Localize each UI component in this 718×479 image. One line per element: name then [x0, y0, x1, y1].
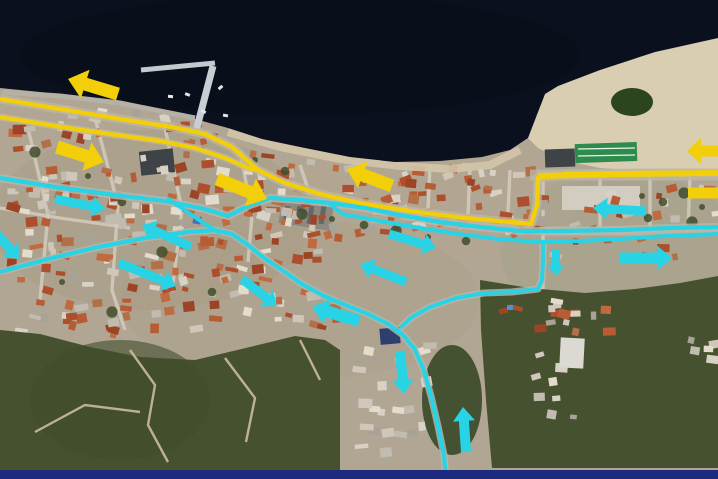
yellow-route-east-highway-overlay	[538, 173, 718, 176]
satellite-map	[0, 0, 718, 479]
bottom-border-bar	[0, 470, 718, 479]
map-figure	[0, 0, 718, 479]
yellow-bar-6	[688, 188, 718, 199]
